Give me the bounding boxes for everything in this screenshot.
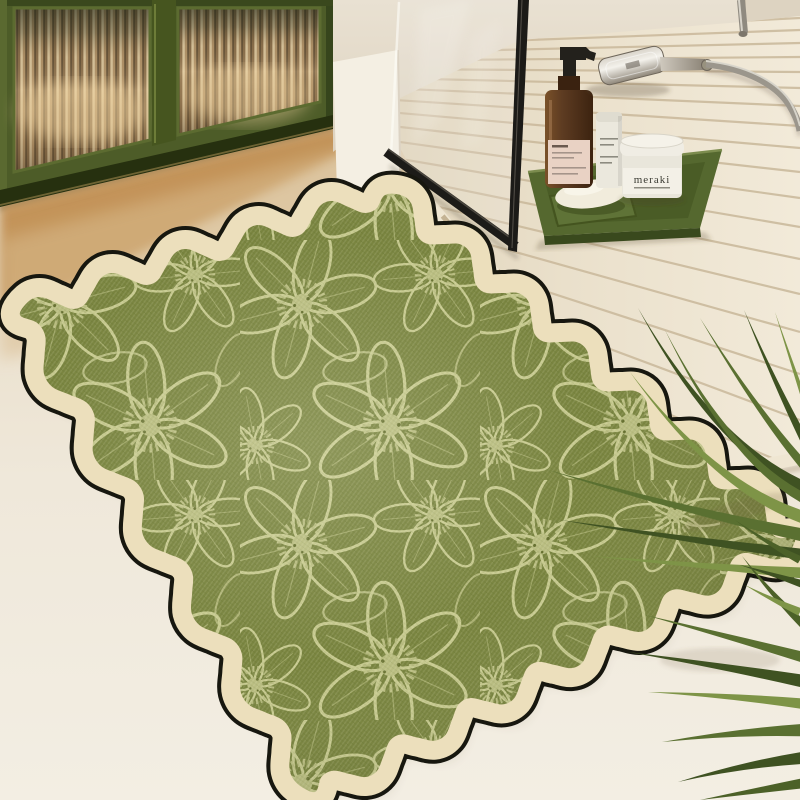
door-left-glow	[16, 82, 148, 142]
tube-text-line	[600, 138, 618, 140]
shower-handle	[660, 57, 706, 71]
bottle-label-line	[552, 152, 582, 154]
bottle-label-line	[552, 167, 586, 169]
bottle-label-line	[552, 173, 578, 175]
jar-brand-text: meraki	[634, 174, 671, 186]
shower-head-shadow	[586, 83, 670, 97]
door-right-glow	[186, 68, 310, 124]
tube-text-line	[600, 162, 612, 164]
tube-text-line	[600, 156, 618, 158]
cabinet-side	[326, 0, 333, 129]
tube-text-line	[600, 144, 614, 146]
bottle-label-title	[552, 145, 568, 148]
jar-lid-top	[621, 134, 683, 148]
jar-subtext-line	[634, 187, 670, 189]
white-tube	[596, 112, 622, 188]
cream-jar: meraki	[619, 134, 685, 206]
bottle-label-line	[552, 157, 574, 159]
bathroom-scene: meraki	[0, 0, 800, 800]
cabinet-left-frame	[0, 0, 7, 205]
hose-top-cap	[739, 31, 748, 37]
scene-photo: meraki	[0, 0, 800, 800]
